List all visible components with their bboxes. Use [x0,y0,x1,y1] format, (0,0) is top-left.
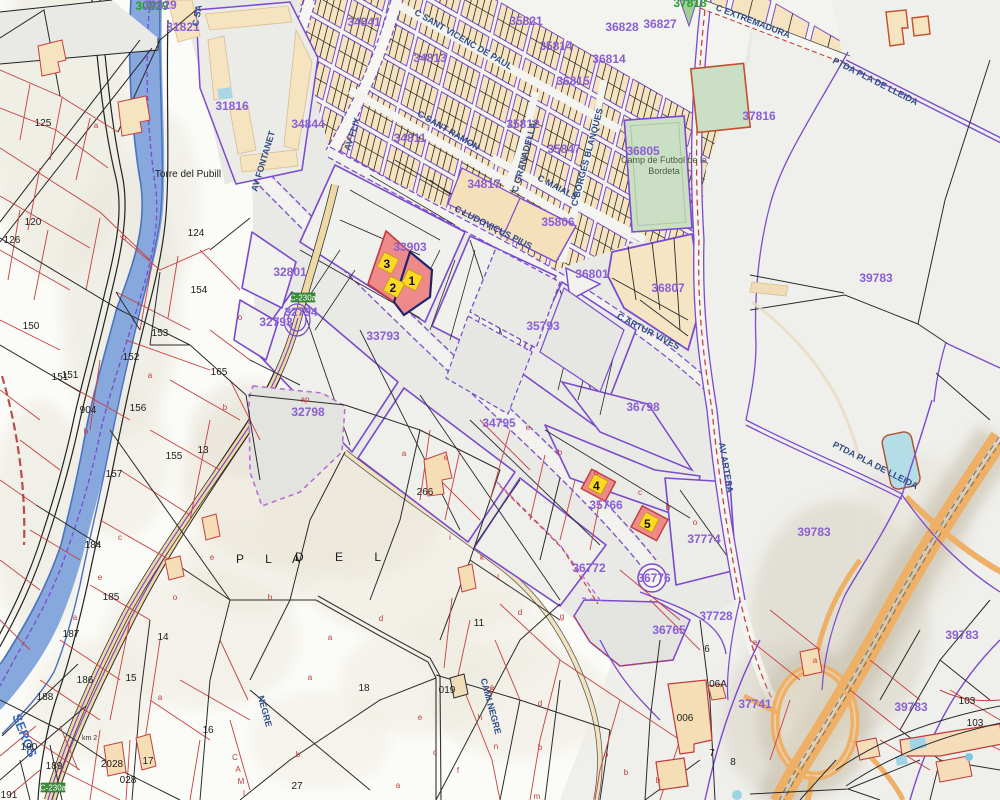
svg-text:34817: 34817 [467,177,501,191]
svg-text:I: I [243,789,245,798]
svg-text:34813: 34813 [413,51,447,65]
svg-text:266: 266 [417,487,434,498]
svg-text:37741: 37741 [738,697,772,711]
svg-text:165: 165 [211,367,228,378]
svg-text:36827: 36827 [643,17,677,31]
svg-text:e: e [98,573,103,582]
svg-text:e: e [753,638,758,647]
svg-text:35806: 35806 [541,215,575,229]
svg-text:g: g [560,612,564,621]
svg-text:154: 154 [191,285,208,296]
svg-text:b: b [666,503,671,512]
svg-text:13: 13 [197,445,209,456]
svg-text:17: 17 [142,756,154,767]
svg-text:39783: 39783 [797,525,831,539]
svg-text:i: i [449,533,451,542]
svg-text:153: 153 [152,328,169,339]
svg-text:006: 006 [677,713,694,724]
svg-text:e: e [418,713,423,722]
svg-text:33903: 33903 [393,240,427,254]
svg-text:b: b [656,776,661,785]
svg-text:c: c [118,533,122,542]
svg-text:p: p [490,686,495,695]
svg-text:ap: ap [301,395,310,404]
svg-text:35766: 35766 [589,498,623,512]
svg-text:11: 11 [474,618,485,629]
svg-text:C: C [232,753,238,762]
svg-text:184: 184 [85,540,102,551]
svg-text:d: d [518,608,522,617]
svg-text:186: 186 [77,675,94,686]
svg-text:019: 019 [439,685,456,696]
svg-text:18: 18 [358,683,370,694]
svg-text:M: M [238,777,245,786]
svg-text:34795: 34795 [482,416,516,430]
svg-text:33793: 33793 [366,329,400,343]
svg-text:36801: 36801 [575,267,609,281]
svg-text:A: A [235,765,241,774]
svg-text:o: o [604,750,609,759]
svg-text:191: 191 [1,790,18,800]
svg-text:C-230a: C-230a [40,784,67,793]
svg-text:15: 15 [125,673,137,684]
svg-text:36828: 36828 [605,20,639,34]
svg-text:904: 904 [80,405,97,416]
svg-text:36765: 36765 [652,623,686,637]
svg-text:a: a [94,121,99,130]
svg-text:c: c [638,488,642,497]
svg-text:2028: 2028 [101,759,124,770]
svg-text:h: h [478,713,482,722]
svg-text:32801: 32801 [273,265,307,279]
svg-text:16: 16 [202,725,214,736]
svg-text:km 2: km 2 [82,735,97,742]
svg-text:2: 2 [390,281,397,295]
svg-text:a: a [328,633,333,642]
svg-text:34811: 34811 [394,131,427,145]
svg-text:187: 187 [63,629,80,640]
svg-text:39783: 39783 [894,700,928,714]
svg-text:37774: 37774 [687,532,721,546]
svg-text:o: o [594,468,599,477]
svg-text:103: 103 [967,718,984,729]
svg-text:39783: 39783 [859,271,893,285]
svg-text:a: a [73,613,78,622]
svg-text:d: d [379,614,383,623]
svg-text:35847: 35847 [547,142,581,156]
svg-text:35821: 35821 [509,14,543,28]
svg-text:32798: 32798 [291,405,325,419]
svg-text:c: c [433,748,437,757]
svg-text:1: 1 [409,274,416,288]
svg-text:36798: 36798 [626,400,660,414]
svg-text:7: 7 [709,748,715,759]
svg-text:185: 185 [103,592,120,603]
svg-text:14: 14 [157,632,169,643]
svg-text:37816: 37816 [742,109,776,123]
svg-text:36772: 36772 [572,561,606,575]
svg-text:126: 126 [4,235,21,246]
svg-text:b: b [296,750,301,759]
svg-text:06A: 06A [709,679,727,690]
svg-text:35814: 35814 [539,39,573,53]
svg-text:156: 156 [130,403,147,414]
svg-text:31816: 31816 [215,99,249,113]
svg-text:188: 188 [37,692,54,703]
svg-text:e: e [210,553,215,562]
svg-text:b: b [223,403,228,412]
svg-text:4: 4 [593,479,600,493]
svg-text:124: 124 [188,228,205,239]
svg-text:D E L: D E L [295,550,395,564]
svg-text:27: 27 [291,781,303,792]
svg-text:35793: 35793 [526,319,560,333]
svg-text:103: 103 [959,696,976,707]
svg-text:028: 028 [120,775,137,786]
svg-text:l: l [497,573,499,582]
svg-text:125: 125 [35,118,52,129]
svg-text:o: o [238,313,243,322]
svg-text:39783: 39783 [945,628,979,642]
svg-text:a: a [158,693,163,702]
svg-text:b: b [268,593,273,602]
svg-text:32794: 32794 [284,305,318,319]
svg-text:37728: 37728 [699,609,733,623]
svg-text:Bordeta: Bordeta [648,166,680,176]
svg-text:e: e [444,453,449,462]
svg-text:n: n [494,742,498,751]
svg-text:120: 120 [25,217,42,228]
svg-text:Torre del Pubill: Torre del Pubill [155,169,221,180]
svg-text:157: 157 [106,469,123,480]
svg-text:a: a [148,371,153,380]
svg-text:8: 8 [730,757,736,768]
svg-text:30829: 30829 [143,0,177,12]
svg-text:151: 151 [52,372,69,383]
svg-text:37818: 37818 [673,0,707,10]
svg-text:5: 5 [644,517,651,531]
svg-text:b: b [122,233,127,242]
svg-text:152: 152 [123,352,140,363]
svg-text:C-230a: C-230a [290,294,317,303]
svg-text:34841: 34841 [347,15,381,29]
svg-text:190: 190 [21,742,38,753]
svg-text:a: a [813,656,818,665]
svg-text:155: 155 [166,451,183,462]
svg-text:b: b [84,427,89,436]
svg-text:o: o [693,518,698,527]
svg-text:36776: 36776 [637,571,671,585]
svg-text:36815: 36815 [556,74,590,88]
svg-text:34844: 34844 [291,117,325,131]
svg-text:b: b [538,743,543,752]
svg-text:189: 189 [46,761,63,772]
svg-text:36814: 36814 [592,52,626,66]
svg-text:36807: 36807 [651,281,685,295]
svg-text:Camp de Futbol de la: Camp de Futbol de la [621,155,707,165]
svg-text:6: 6 [704,644,710,655]
svg-text:a: a [396,781,401,790]
svg-text:m: m [534,792,541,800]
svg-text:150: 150 [23,321,40,332]
svg-text:b: b [624,768,629,777]
svg-text:a: a [402,449,407,458]
svg-text:e: e [526,423,531,432]
svg-text:o: o [173,593,178,602]
svg-text:a: a [308,673,313,682]
svg-text:d: d [538,699,542,708]
svg-text:b: b [558,448,563,457]
svg-text:3: 3 [384,257,391,271]
